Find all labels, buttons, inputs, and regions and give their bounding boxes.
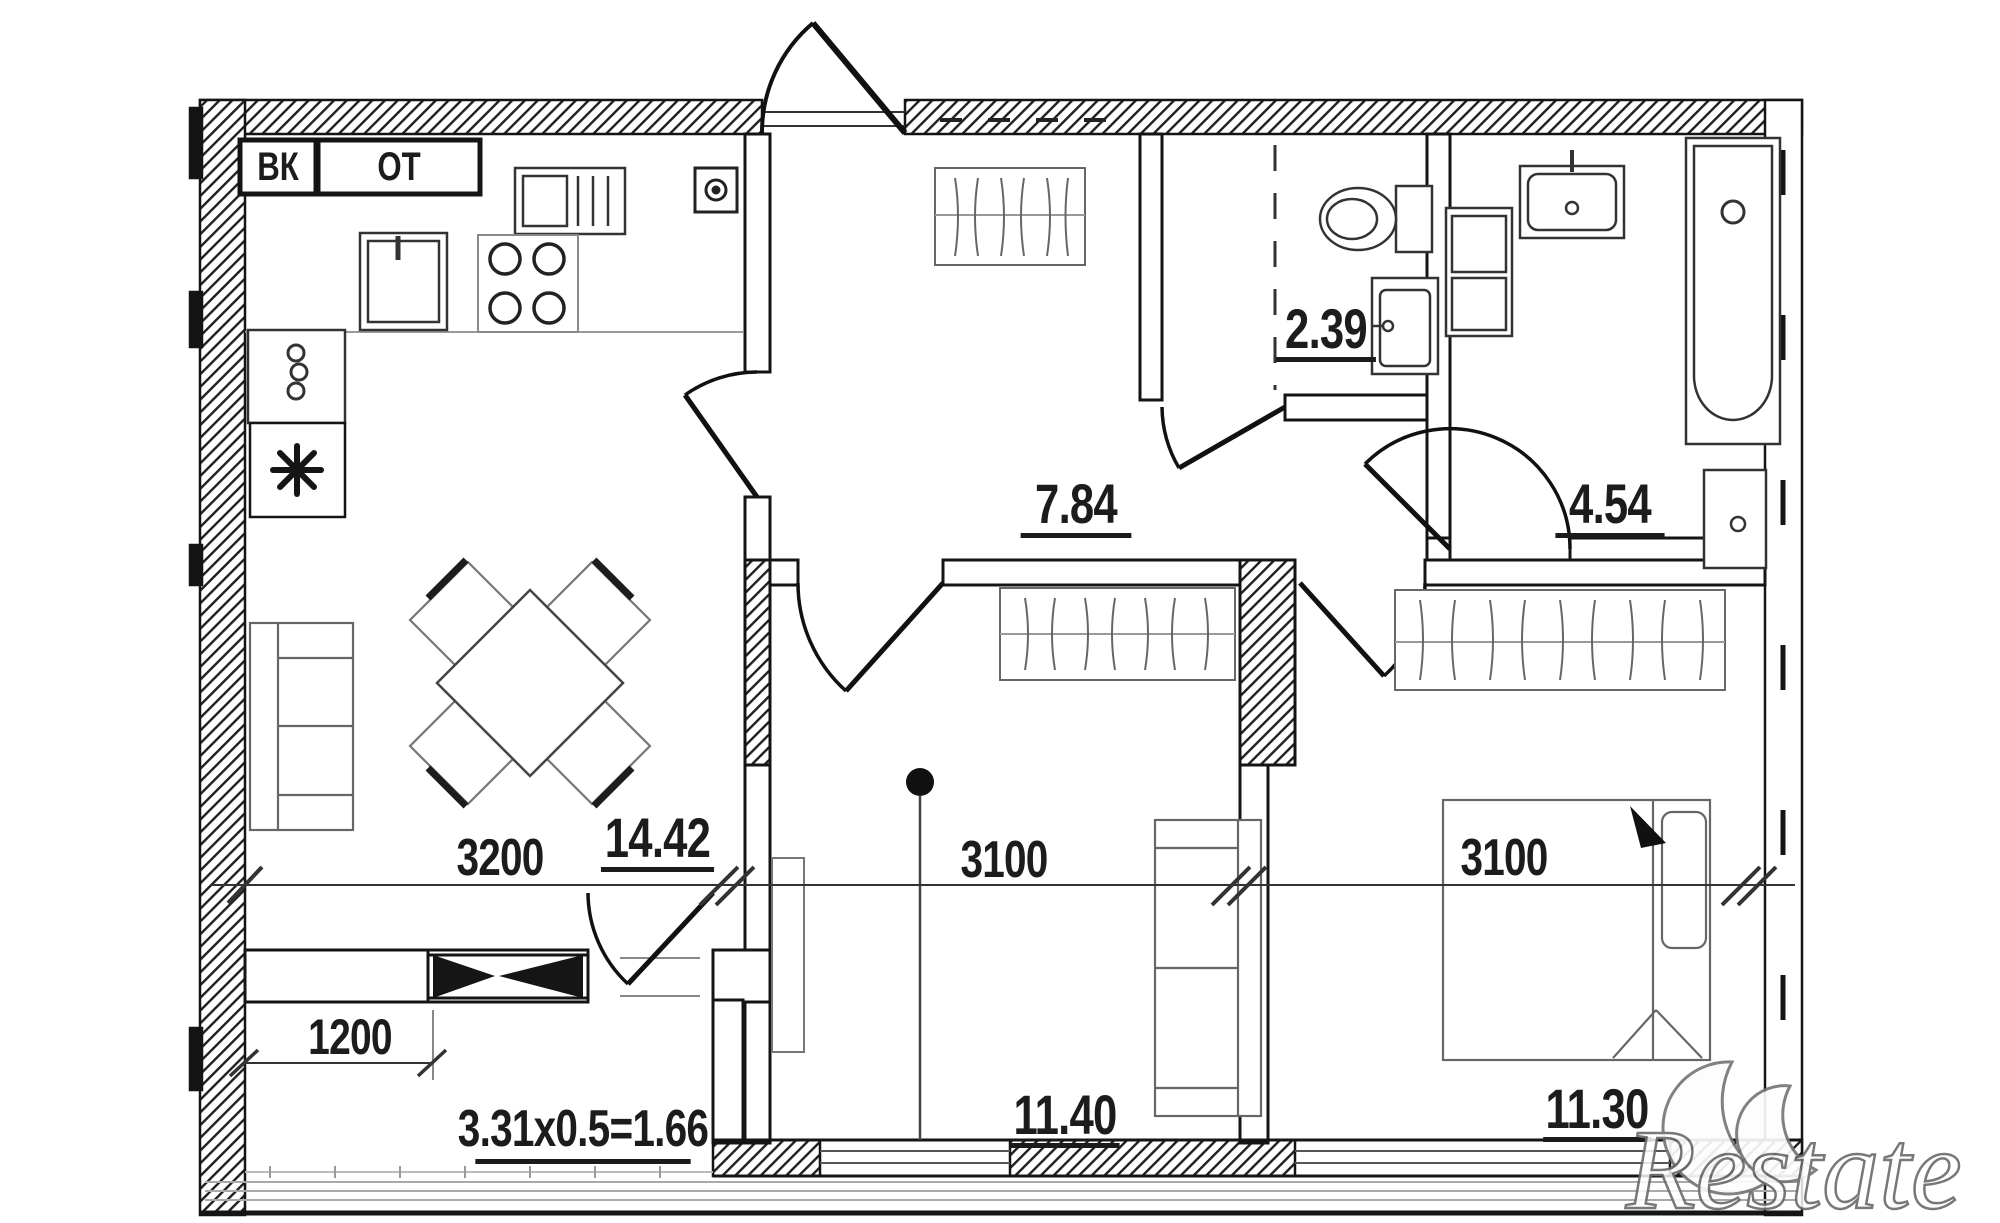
dim-bedroom-middle-width: 3100: [960, 834, 1047, 886]
dim-balcony-width: 1200: [303, 1012, 397, 1062]
washing-machine-icon: [1446, 208, 1512, 336]
shaft-label-heating: ОТ: [336, 142, 462, 192]
room-area-kitchen-living: 14.42: [601, 810, 714, 872]
kitchen-sink-icon: [515, 168, 625, 234]
hall-wardrobe-icon: [935, 168, 1085, 265]
watermark-text: Restate: [1625, 1106, 1962, 1223]
room-area-wc: 2.39: [1276, 302, 1376, 362]
floor-plan-page: ВК ОТ 7.84 2.39 4.54 14.42 11.40 11.30 3…: [0, 0, 2000, 1223]
wc-door-icon: [1162, 407, 1285, 468]
tv-stand-icon: [772, 858, 804, 1052]
balcony-rail: [200, 1166, 1802, 1213]
bedroom-middle-sofa-icon: [1155, 820, 1261, 1116]
shaft-label-ventilation: ВК: [248, 142, 307, 192]
dim-balcony-area-formula: 3.31x0.5=1.66: [475, 1102, 690, 1164]
living-room-door-icon: [685, 372, 757, 497]
bedroom-middle-wardrobe-icon: [1000, 588, 1235, 680]
dim-bedroom-right-width: 3100: [1460, 832, 1547, 884]
doorbell-box-icon: [695, 168, 737, 212]
fridge-icon: [248, 330, 345, 423]
bedroom-middle-door-icon: [798, 583, 943, 691]
balcony-door-icon: [588, 893, 713, 996]
room-area-hallway: 7.84: [1021, 476, 1132, 538]
bathtub-icon: [1686, 138, 1780, 444]
room-area-bedroom-middle: 11.40: [1010, 1088, 1119, 1148]
stove-icon: [478, 235, 578, 332]
wc-sink-icon: [1372, 278, 1438, 374]
bedroom-right-wardrobe-icon: [1395, 590, 1725, 690]
watermark: Restate: [1620, 1058, 2000, 1223]
toilet-icon: [1320, 186, 1432, 252]
boiler-icon: [1704, 470, 1766, 568]
dim-kitchen-width: 3200: [453, 832, 547, 884]
bathroom-sink-icon: [1520, 150, 1624, 238]
bathroom-door-icon: [1365, 429, 1570, 549]
ceiling-light-icon: [906, 768, 934, 1140]
living-sofa-icon: [250, 623, 353, 830]
room-area-bathroom: 4.54: [1555, 476, 1664, 538]
dining-table-icon: [410, 560, 650, 806]
freezer-snowflake-icon: [250, 423, 345, 517]
kitchen-cabinet-sink-icon: [360, 233, 447, 330]
